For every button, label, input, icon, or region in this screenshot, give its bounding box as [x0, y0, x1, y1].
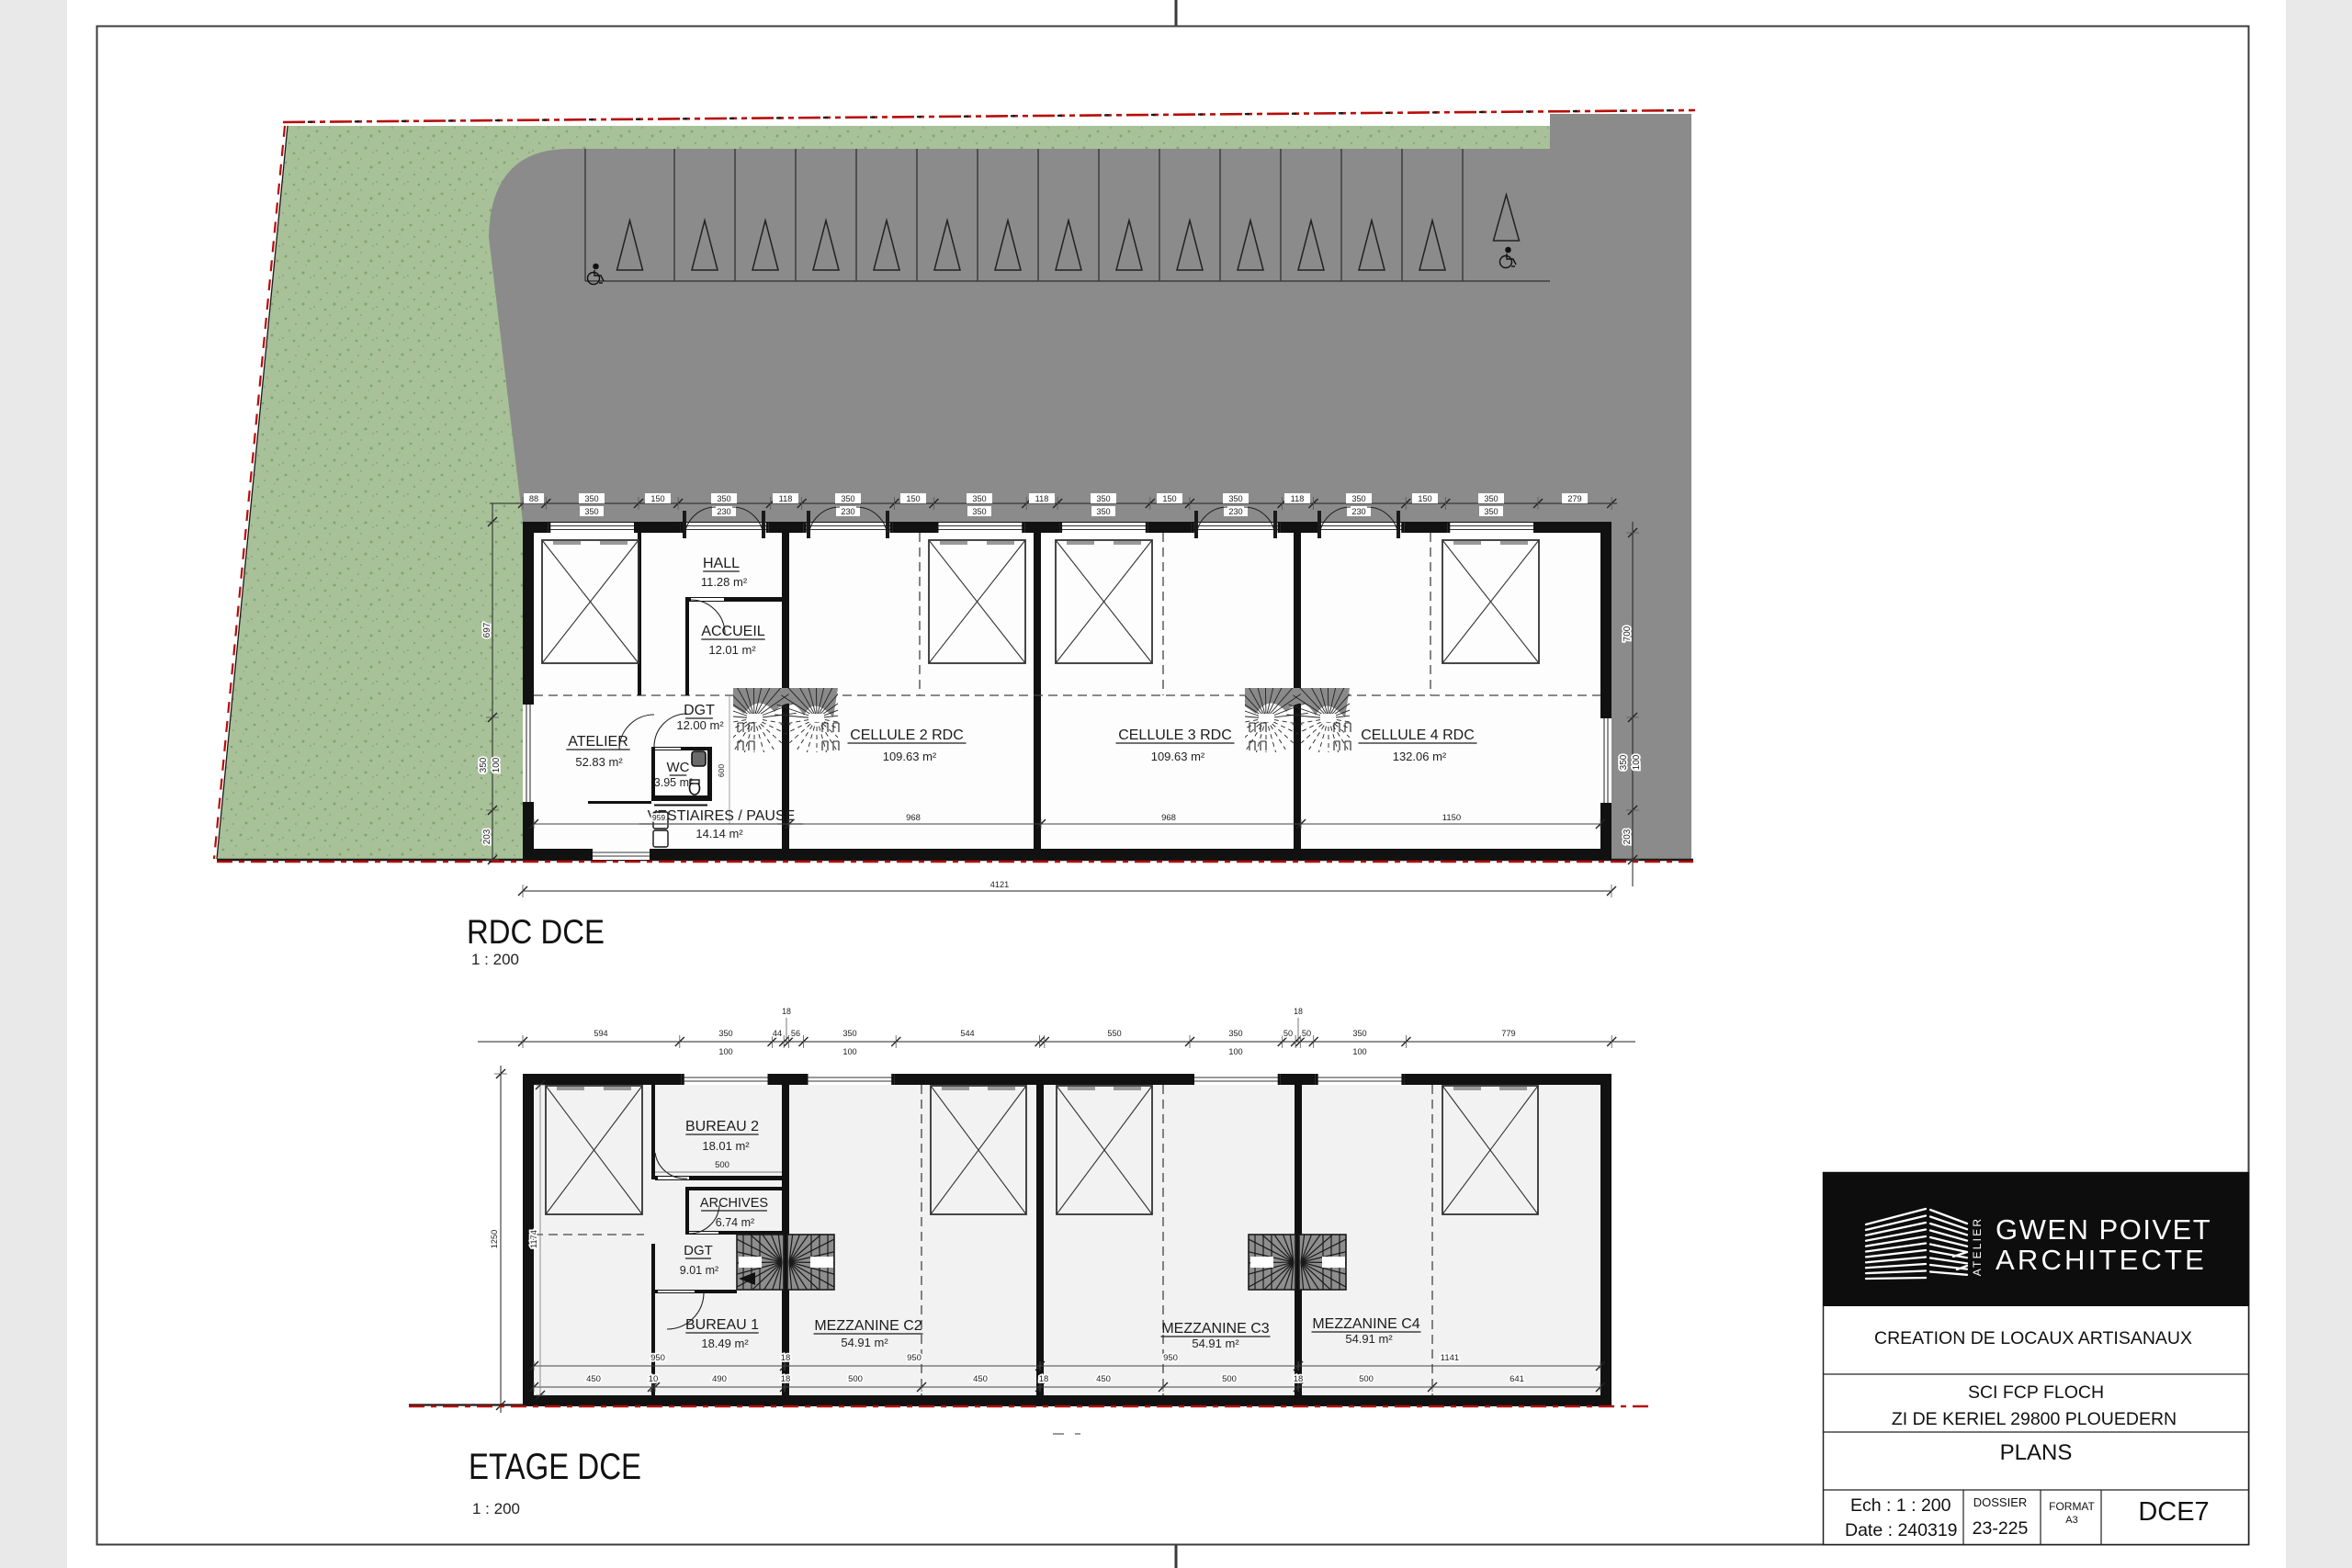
svg-text:MEZZANINE C4: MEZZANINE C4 [1312, 1316, 1419, 1332]
svg-text:350: 350 [1351, 494, 1365, 503]
svg-text:ACCUEIL: ACCUEIL [701, 624, 764, 639]
svg-text:350: 350 [1484, 507, 1498, 516]
svg-text:ETAGE DCE: ETAGE DCE [469, 1447, 641, 1487]
svg-text:350: 350 [717, 494, 730, 503]
svg-text:88: 88 [529, 494, 538, 503]
svg-text:350: 350 [1352, 1029, 1366, 1038]
svg-text:18: 18 [781, 1353, 791, 1363]
svg-text:ATELIER: ATELIER [568, 734, 628, 750]
svg-text:RDC DCE: RDC DCE [467, 913, 605, 951]
svg-text:350: 350 [841, 494, 854, 503]
svg-text:350: 350 [1096, 494, 1110, 503]
svg-text:1150: 1150 [1442, 813, 1461, 823]
svg-text:PLANS: PLANS [2000, 1440, 2073, 1465]
svg-text:10: 10 [649, 1374, 659, 1384]
svg-text:DGT: DGT [684, 1243, 713, 1258]
svg-text:594: 594 [594, 1029, 607, 1038]
svg-text:18: 18 [1294, 1007, 1303, 1016]
svg-text:SCI FCP FLOCH: SCI FCP FLOCH [1968, 1382, 2104, 1403]
svg-text:12.00 m²: 12.00 m² [676, 718, 724, 732]
svg-text:700: 700 [1623, 626, 1633, 641]
svg-text:450: 450 [586, 1374, 601, 1384]
svg-text:56: 56 [791, 1029, 800, 1038]
svg-text:500: 500 [848, 1374, 863, 1384]
svg-text:Date : 240319: Date : 240319 [1845, 1520, 1958, 1540]
svg-text:544: 544 [960, 1029, 974, 1038]
svg-text:ARCHIVES: ARCHIVES [700, 1196, 768, 1211]
svg-text:350: 350 [1619, 754, 1629, 770]
svg-text:350: 350 [1484, 494, 1498, 503]
svg-text:450: 450 [1096, 1374, 1111, 1384]
svg-text:CELLULE 2 RDC: CELLULE 2 RDC [850, 728, 964, 743]
svg-text:GWEN POIVET: GWEN POIVET [1996, 1213, 2211, 1246]
svg-text:230: 230 [717, 507, 730, 516]
svg-text:968: 968 [1161, 813, 1176, 823]
svg-text:6.74 m²: 6.74 m² [716, 1216, 754, 1229]
svg-text:18: 18 [1294, 1374, 1304, 1384]
svg-text:109.63 m²: 109.63 m² [1151, 750, 1205, 763]
svg-text:CELLULE 4 RDC: CELLULE 4 RDC [1361, 728, 1475, 743]
svg-text:MEZZANINE C2: MEZZANINE C2 [814, 1318, 922, 1334]
svg-text:500: 500 [1359, 1374, 1374, 1384]
svg-text:CELLULE 3 RDC: CELLULE 3 RDC [1118, 728, 1232, 743]
svg-text:FORMAT: FORMAT [2049, 1500, 2095, 1513]
svg-text:350: 350 [584, 507, 598, 516]
svg-text:118: 118 [1035, 494, 1049, 503]
svg-text:350: 350 [718, 1029, 732, 1038]
svg-text:779: 779 [1501, 1029, 1515, 1038]
svg-text:100: 100 [1228, 1047, 1242, 1056]
svg-text:9.01 m²: 9.01 m² [680, 1264, 718, 1277]
svg-text:109.63 m²: 109.63 m² [883, 750, 937, 763]
svg-text:23-225: 23-225 [1973, 1518, 2029, 1539]
svg-text:54.91 m²: 54.91 m² [841, 1336, 888, 1349]
svg-text:132.06 m²: 132.06 m² [1393, 750, 1447, 763]
svg-text:279: 279 [1567, 494, 1581, 503]
svg-text:MEZZANINE C3: MEZZANINE C3 [1161, 1321, 1269, 1337]
svg-text:3.95 m²: 3.95 m² [654, 776, 693, 789]
svg-text:1250: 1250 [490, 1230, 499, 1248]
svg-text:950: 950 [1163, 1353, 1178, 1363]
svg-text:500: 500 [1222, 1374, 1237, 1384]
svg-text:350: 350 [584, 494, 598, 503]
svg-text:BUREAU 1: BUREAU 1 [685, 1317, 759, 1333]
svg-text:18: 18 [781, 1374, 791, 1384]
svg-text:52.83 m²: 52.83 m² [575, 755, 623, 769]
svg-text:ZI DE KERIEL 29800 PLOUEDERN: ZI DE KERIEL 29800 PLOUEDERN [1892, 1409, 2177, 1429]
svg-text:230: 230 [1228, 507, 1242, 516]
svg-text:18: 18 [782, 1007, 791, 1016]
svg-text:Ech : 1 : 200: Ech : 1 : 200 [1850, 1495, 1951, 1516]
svg-text:CREATION DE LOCAUX ARTISANAUX: CREATION DE LOCAUX ARTISANAUX [1874, 1328, 2192, 1348]
svg-text:203: 203 [482, 829, 492, 844]
svg-text:230: 230 [841, 507, 854, 516]
svg-text:230: 230 [1351, 507, 1365, 516]
svg-text:1 : 200: 1 : 200 [471, 951, 519, 968]
svg-text:50: 50 [1302, 1029, 1311, 1038]
svg-text:100: 100 [492, 757, 502, 773]
svg-text:WC: WC [667, 760, 690, 775]
svg-text:BUREAU 2: BUREAU 2 [685, 1119, 759, 1134]
svg-text:18.49 m²: 18.49 m² [701, 1337, 749, 1350]
svg-text:450: 450 [973, 1374, 988, 1384]
svg-text:DGT: DGT [684, 703, 715, 718]
svg-text:44: 44 [773, 1029, 782, 1038]
svg-text:950: 950 [650, 1353, 665, 1363]
svg-text:641: 641 [1510, 1374, 1524, 1384]
svg-text:959: 959 [652, 813, 665, 822]
svg-text:490: 490 [712, 1374, 727, 1384]
svg-text:DOSSIER: DOSSIER [1973, 1495, 2028, 1509]
svg-text:100: 100 [1352, 1047, 1366, 1056]
svg-text:14.14 m²: 14.14 m² [695, 827, 743, 840]
svg-text:150: 150 [1418, 494, 1431, 503]
svg-text:100: 100 [842, 1047, 856, 1056]
svg-text:1 : 200: 1 : 200 [472, 1500, 520, 1517]
svg-text:18: 18 [1039, 1374, 1049, 1384]
svg-text:54.91 m²: 54.91 m² [1345, 1332, 1393, 1346]
svg-text:350: 350 [1096, 507, 1110, 516]
svg-text:HALL: HALL [703, 556, 740, 571]
svg-text:DCE7: DCE7 [2138, 1497, 2209, 1527]
svg-text:203: 203 [1623, 829, 1633, 844]
svg-text:350: 350 [1228, 494, 1242, 503]
svg-text:VESTIAIRES / PAUSE: VESTIAIRES / PAUSE [648, 808, 796, 824]
svg-text:1141: 1141 [1441, 1353, 1459, 1363]
svg-text:697: 697 [482, 622, 492, 637]
svg-text:12.01 m²: 12.01 m² [708, 643, 756, 657]
svg-text:4121: 4121 [990, 880, 1009, 889]
svg-text:350: 350 [972, 494, 986, 503]
svg-text:100: 100 [718, 1047, 732, 1056]
svg-text:118: 118 [1291, 494, 1305, 503]
svg-text:11.28 m²: 11.28 m² [701, 575, 748, 589]
svg-text:A3: A3 [2065, 1515, 2077, 1526]
svg-text:18.01 m²: 18.01 m² [702, 1139, 750, 1153]
svg-text:350: 350 [479, 757, 489, 773]
svg-text:950: 950 [907, 1353, 922, 1363]
svg-text:150: 150 [906, 494, 920, 503]
svg-text:118: 118 [779, 494, 793, 503]
svg-text:968: 968 [906, 813, 921, 823]
svg-text:500: 500 [715, 1160, 729, 1170]
svg-text:ATELIER: ATELIER [1971, 1217, 1984, 1277]
svg-text:1174: 1174 [529, 1230, 538, 1248]
svg-text:ARCHITECTE: ARCHITECTE [1996, 1244, 2207, 1276]
svg-text:100: 100 [1632, 754, 1642, 770]
svg-text:600: 600 [717, 764, 726, 777]
svg-text:150: 150 [1162, 494, 1176, 503]
svg-text:350: 350 [1228, 1029, 1242, 1038]
svg-text:350: 350 [972, 507, 986, 516]
svg-text:54.91 m²: 54.91 m² [1192, 1337, 1239, 1350]
svg-text:350: 350 [842, 1029, 856, 1038]
svg-text:550: 550 [1107, 1029, 1121, 1038]
svg-text:150: 150 [650, 494, 664, 503]
svg-text:50: 50 [1283, 1029, 1293, 1038]
